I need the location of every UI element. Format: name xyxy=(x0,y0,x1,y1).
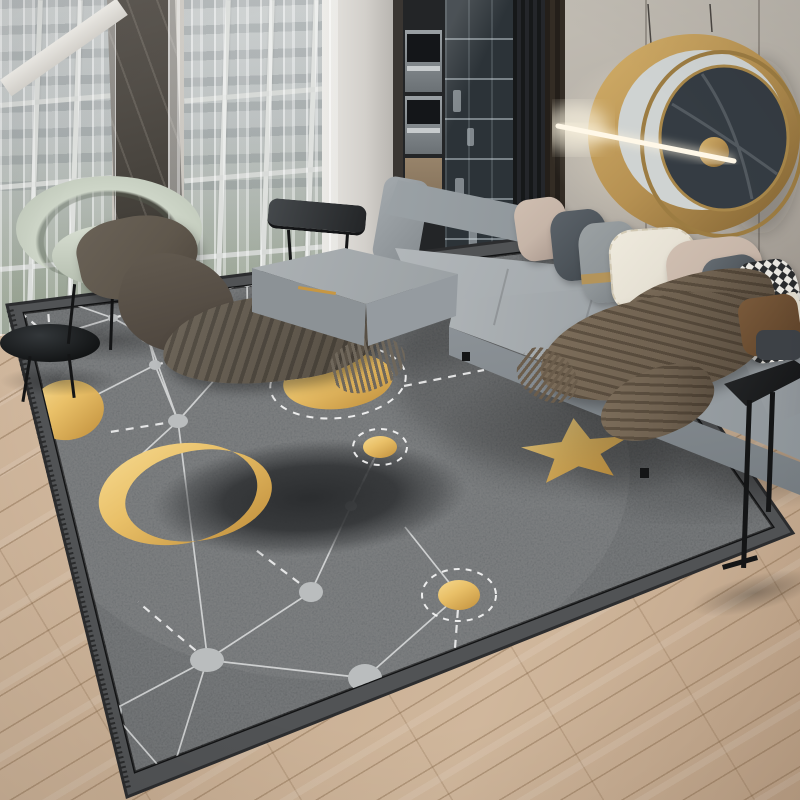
sofa-leg xyxy=(640,468,649,478)
gold-planet-small xyxy=(363,436,397,458)
sofa-leg xyxy=(462,352,470,361)
side-table-left xyxy=(0,324,100,362)
gold-planet-bottom xyxy=(438,580,480,610)
table-shadow xyxy=(0,366,120,396)
stool-cushion xyxy=(756,330,800,360)
living-room-photo xyxy=(0,0,800,800)
